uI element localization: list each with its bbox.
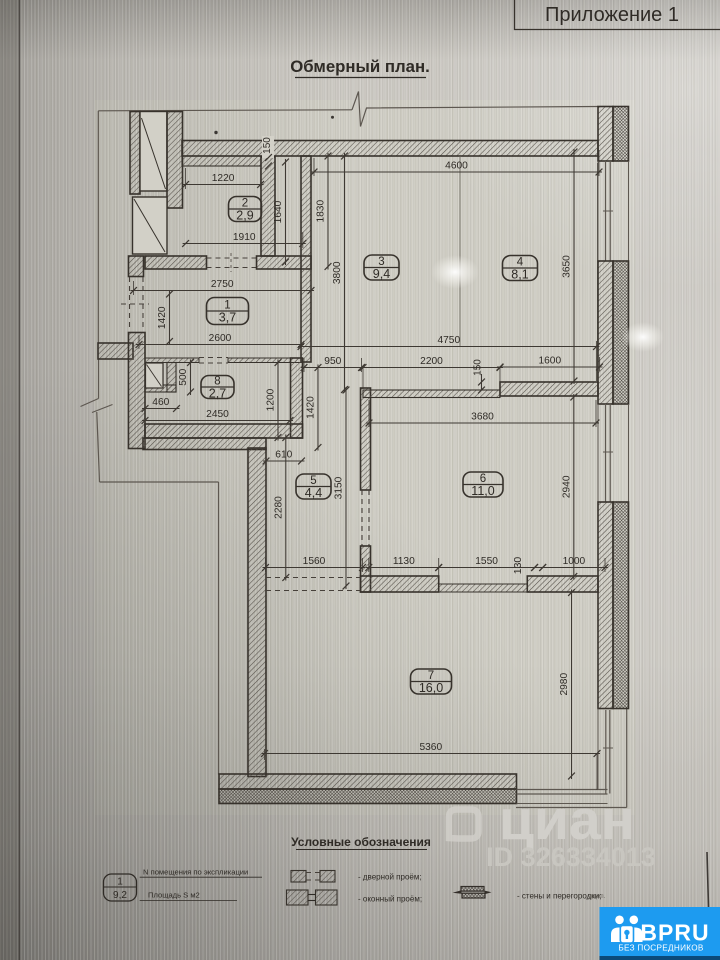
svg-text:150: 150 [473,359,484,376]
svg-text:3680: 3680 [471,412,494,423]
svg-text:8,1: 8,1 [511,268,528,282]
svg-text:1420: 1420 [306,396,317,419]
svg-text:БЕЗ ПОСРЕДНИКОВ: БЕЗ ПОСРЕДНИКОВ [618,944,704,953]
svg-text:500: 500 [178,368,189,385]
svg-text:1220: 1220 [212,173,235,184]
svg-text:2450: 2450 [206,409,229,420]
svg-text:1560: 1560 [303,556,326,567]
svg-text:9,4: 9,4 [373,267,390,281]
svg-text:130: 130 [512,557,524,575]
svg-text:укцип.: укцип. [588,894,606,900]
svg-text:3650: 3650 [562,255,573,278]
svg-text:2980: 2980 [559,673,570,696]
svg-text:4600: 4600 [445,161,468,172]
svg-text:N помещения по экспликации: N помещения по экспликации [143,868,248,877]
svg-text:1640: 1640 [273,200,284,223]
svg-text:610: 610 [275,450,292,461]
svg-text:5360: 5360 [419,742,442,753]
svg-text:ID 326334013: ID 326334013 [486,842,656,872]
svg-text:2200: 2200 [420,356,443,367]
svg-text:BPRU: BPRU [640,920,709,946]
svg-text:2600: 2600 [209,333,232,344]
svg-text:150: 150 [262,137,273,154]
svg-text:1200: 1200 [266,388,277,411]
svg-text:Условные обозначения: Условные обозначения [291,835,431,849]
svg-text:1550: 1550 [475,556,498,567]
svg-text:3800: 3800 [332,261,343,284]
svg-text:1910: 1910 [233,232,256,243]
svg-text:1130: 1130 [393,556,415,567]
svg-text:3,7: 3,7 [219,311,236,325]
svg-text:2750: 2750 [211,279,234,290]
svg-text:1: 1 [117,877,123,888]
svg-text:1420: 1420 [157,306,168,329]
svg-text:2,9: 2,9 [236,209,253,223]
svg-text:950: 950 [324,356,341,367]
svg-text:4750: 4750 [437,335,460,346]
svg-text:3150: 3150 [334,476,345,499]
svg-text:Приложение 1: Приложение 1 [545,4,679,26]
svg-text:- оконный проём;: - оконный проём; [358,895,422,904]
svg-text:2280: 2280 [273,496,284,519]
svg-text:- дверной проём;: - дверной проём; [358,873,422,882]
svg-text:Площадь S м2: Площадь S м2 [148,891,200,900]
svg-text:1830: 1830 [316,200,327,223]
svg-text:4,4: 4,4 [305,486,322,500]
svg-text:9,2: 9,2 [113,890,127,901]
svg-text:1600: 1600 [538,356,561,367]
svg-text:16,0: 16,0 [419,681,443,695]
svg-text:2,7: 2,7 [209,387,226,401]
svg-text:460: 460 [152,397,169,408]
svg-text:Обмерный план.: Обмерный план. [290,57,430,76]
svg-text:2940: 2940 [561,475,572,498]
svg-text:11,0: 11,0 [471,484,494,498]
